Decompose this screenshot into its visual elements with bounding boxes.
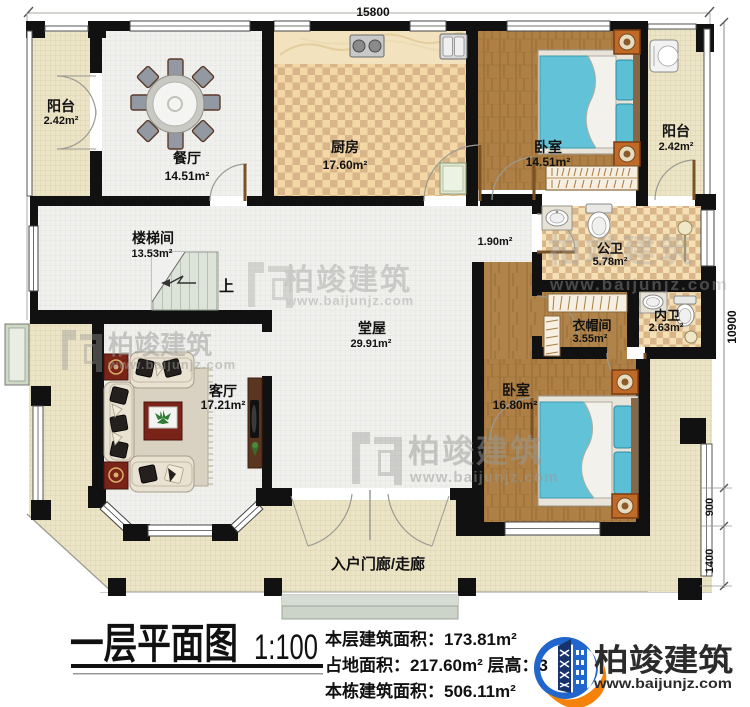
svg-text:入户门廊/走廊: 入户门廊/走廊 (331, 555, 425, 573)
svg-text:14.51m²: 14.51m² (165, 169, 210, 183)
svg-text:1.90m²: 1.90m² (478, 236, 513, 248)
svg-text:3.55m²: 3.55m² (573, 333, 608, 345)
svg-text:17.21m²: 17.21m² (201, 398, 246, 412)
svg-text:楼梯间: 楼梯间 (132, 230, 174, 246)
svg-text:柏竣建筑: 柏竣建筑 (108, 330, 212, 360)
svg-text:14.51m²: 14.51m² (526, 155, 571, 169)
svg-text:1:100: 1:100 (254, 628, 318, 667)
svg-text:公卫: 公卫 (597, 241, 623, 256)
svg-text:www.baijunjz.com: www.baijunjz.com (409, 469, 559, 486)
svg-text:卧室: 卧室 (502, 382, 530, 398)
svg-text:13.53m²: 13.53m² (132, 248, 173, 260)
svg-text:卧室: 卧室 (534, 139, 562, 155)
svg-text:阳台: 阳台 (662, 123, 690, 139)
svg-text:占地面积：217.60m² 层高：3: 占地面积：217.60m² 层高：3 (325, 655, 548, 675)
svg-text:900: 900 (704, 498, 716, 516)
svg-text:一层平面图: 一层平面图 (70, 620, 238, 667)
svg-text:柏竣建筑: 柏竣建筑 (594, 643, 733, 678)
svg-text:2.63m²: 2.63m² (649, 322, 684, 334)
svg-text:厨房: 厨房 (331, 139, 359, 155)
svg-text:15800: 15800 (356, 5, 390, 19)
svg-text:www.baijunjz.com: www.baijunjz.com (549, 275, 729, 294)
svg-text:2.42m²: 2.42m² (659, 141, 694, 153)
svg-text:www.baijunjz.com: www.baijunjz.com (107, 357, 236, 372)
svg-text:29.91m²: 29.91m² (351, 338, 392, 350)
svg-text:www.baijunjz.com: www.baijunjz.com (593, 675, 732, 691)
svg-text:客厅: 客厅 (208, 383, 237, 399)
svg-text:阳台: 阳台 (47, 98, 75, 114)
svg-text:17.60m²: 17.60m² (323, 158, 368, 172)
svg-text:上: 上 (219, 278, 234, 295)
svg-text:堂屋: 堂屋 (358, 320, 386, 336)
svg-text:本栋建筑面积：506.11m²: 本栋建筑面积：506.11m² (325, 681, 516, 701)
svg-text:柏竣建筑: 柏竣建筑 (408, 433, 544, 469)
svg-text:内卫: 内卫 (654, 308, 680, 323)
svg-text:2.42m²: 2.42m² (44, 115, 79, 127)
svg-text:10900: 10900 (725, 310, 739, 344)
svg-text:16.80m²: 16.80m² (493, 398, 538, 412)
svg-text:柏竣建筑: 柏竣建筑 (284, 263, 412, 297)
svg-text:本层建筑面积：173.81m²: 本层建筑面积：173.81m² (325, 629, 517, 649)
svg-text:衣帽间: 衣帽间 (572, 318, 611, 333)
svg-text:1400: 1400 (704, 549, 716, 573)
svg-text:餐厅: 餐厅 (172, 150, 201, 166)
svg-text:5.78m²: 5.78m² (593, 256, 628, 268)
svg-text:www.baijunjz.com: www.baijunjz.com (285, 293, 414, 308)
